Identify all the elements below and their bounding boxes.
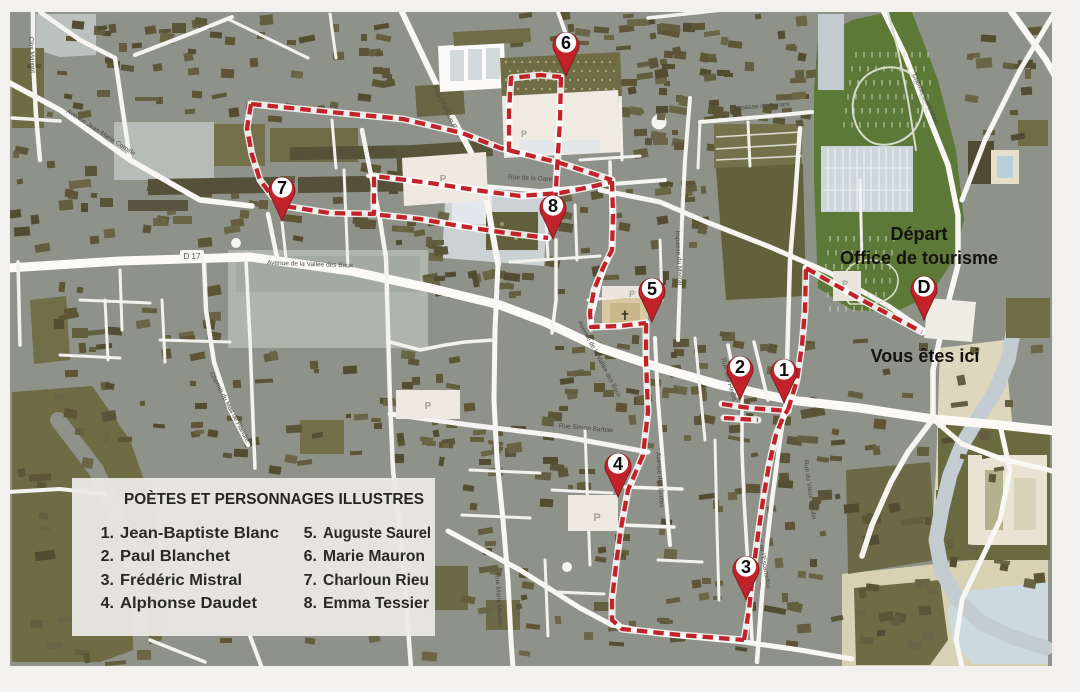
svg-text:4.: 4. bbox=[101, 595, 114, 612]
svg-text:Emma Tessier: Emma Tessier bbox=[323, 595, 429, 612]
svg-text:2: 2 bbox=[735, 357, 745, 377]
svg-text:1: 1 bbox=[779, 360, 789, 380]
svg-text:6: 6 bbox=[561, 33, 571, 53]
svg-text:8.: 8. bbox=[304, 595, 317, 612]
svg-text:P: P bbox=[425, 401, 432, 412]
svg-text:Paul Blanchet: Paul Blanchet bbox=[120, 548, 231, 565]
svg-text:Charloun Rieu: Charloun Rieu bbox=[323, 572, 429, 589]
svg-text:D: D bbox=[918, 277, 931, 297]
svg-text:Frédéric Mistral: Frédéric Mistral bbox=[120, 572, 242, 589]
svg-text:P: P bbox=[629, 289, 635, 299]
svg-text:3: 3 bbox=[741, 557, 751, 577]
svg-text:P: P bbox=[593, 512, 600, 524]
svg-text:Alphonse Daudet: Alphonse Daudet bbox=[120, 595, 258, 612]
svg-text:POÈTES ET PERSONNAGES ILLUSTRE: POÈTES ET PERSONNAGES ILLUSTRES bbox=[124, 491, 424, 508]
svg-text:6.: 6. bbox=[304, 548, 317, 565]
svg-text:1.: 1. bbox=[101, 525, 114, 542]
svg-text:Départ: Départ bbox=[890, 224, 947, 244]
svg-text:8: 8 bbox=[548, 196, 558, 216]
svg-text:5.: 5. bbox=[304, 525, 317, 542]
svg-text:3.: 3. bbox=[101, 572, 114, 589]
svg-text:Jean-Baptiste Blanc: Jean-Baptiste Blanc bbox=[120, 525, 279, 542]
svg-text:✝: ✝ bbox=[620, 308, 631, 323]
svg-text:4: 4 bbox=[613, 454, 623, 474]
svg-text:P: P bbox=[521, 129, 527, 139]
svg-text:Marie Mauron: Marie Mauron bbox=[323, 548, 425, 565]
svg-text:Auguste Saurel: Auguste Saurel bbox=[323, 525, 431, 542]
svg-text:D 17: D 17 bbox=[184, 252, 201, 261]
svg-text:7: 7 bbox=[277, 178, 287, 198]
svg-text:5: 5 bbox=[647, 279, 657, 299]
svg-text:7.: 7. bbox=[304, 572, 317, 589]
svg-text:Office de tourisme: Office de tourisme bbox=[840, 248, 998, 268]
svg-text:2.: 2. bbox=[101, 548, 114, 565]
svg-text:Vous êtes ici: Vous êtes ici bbox=[871, 346, 980, 366]
